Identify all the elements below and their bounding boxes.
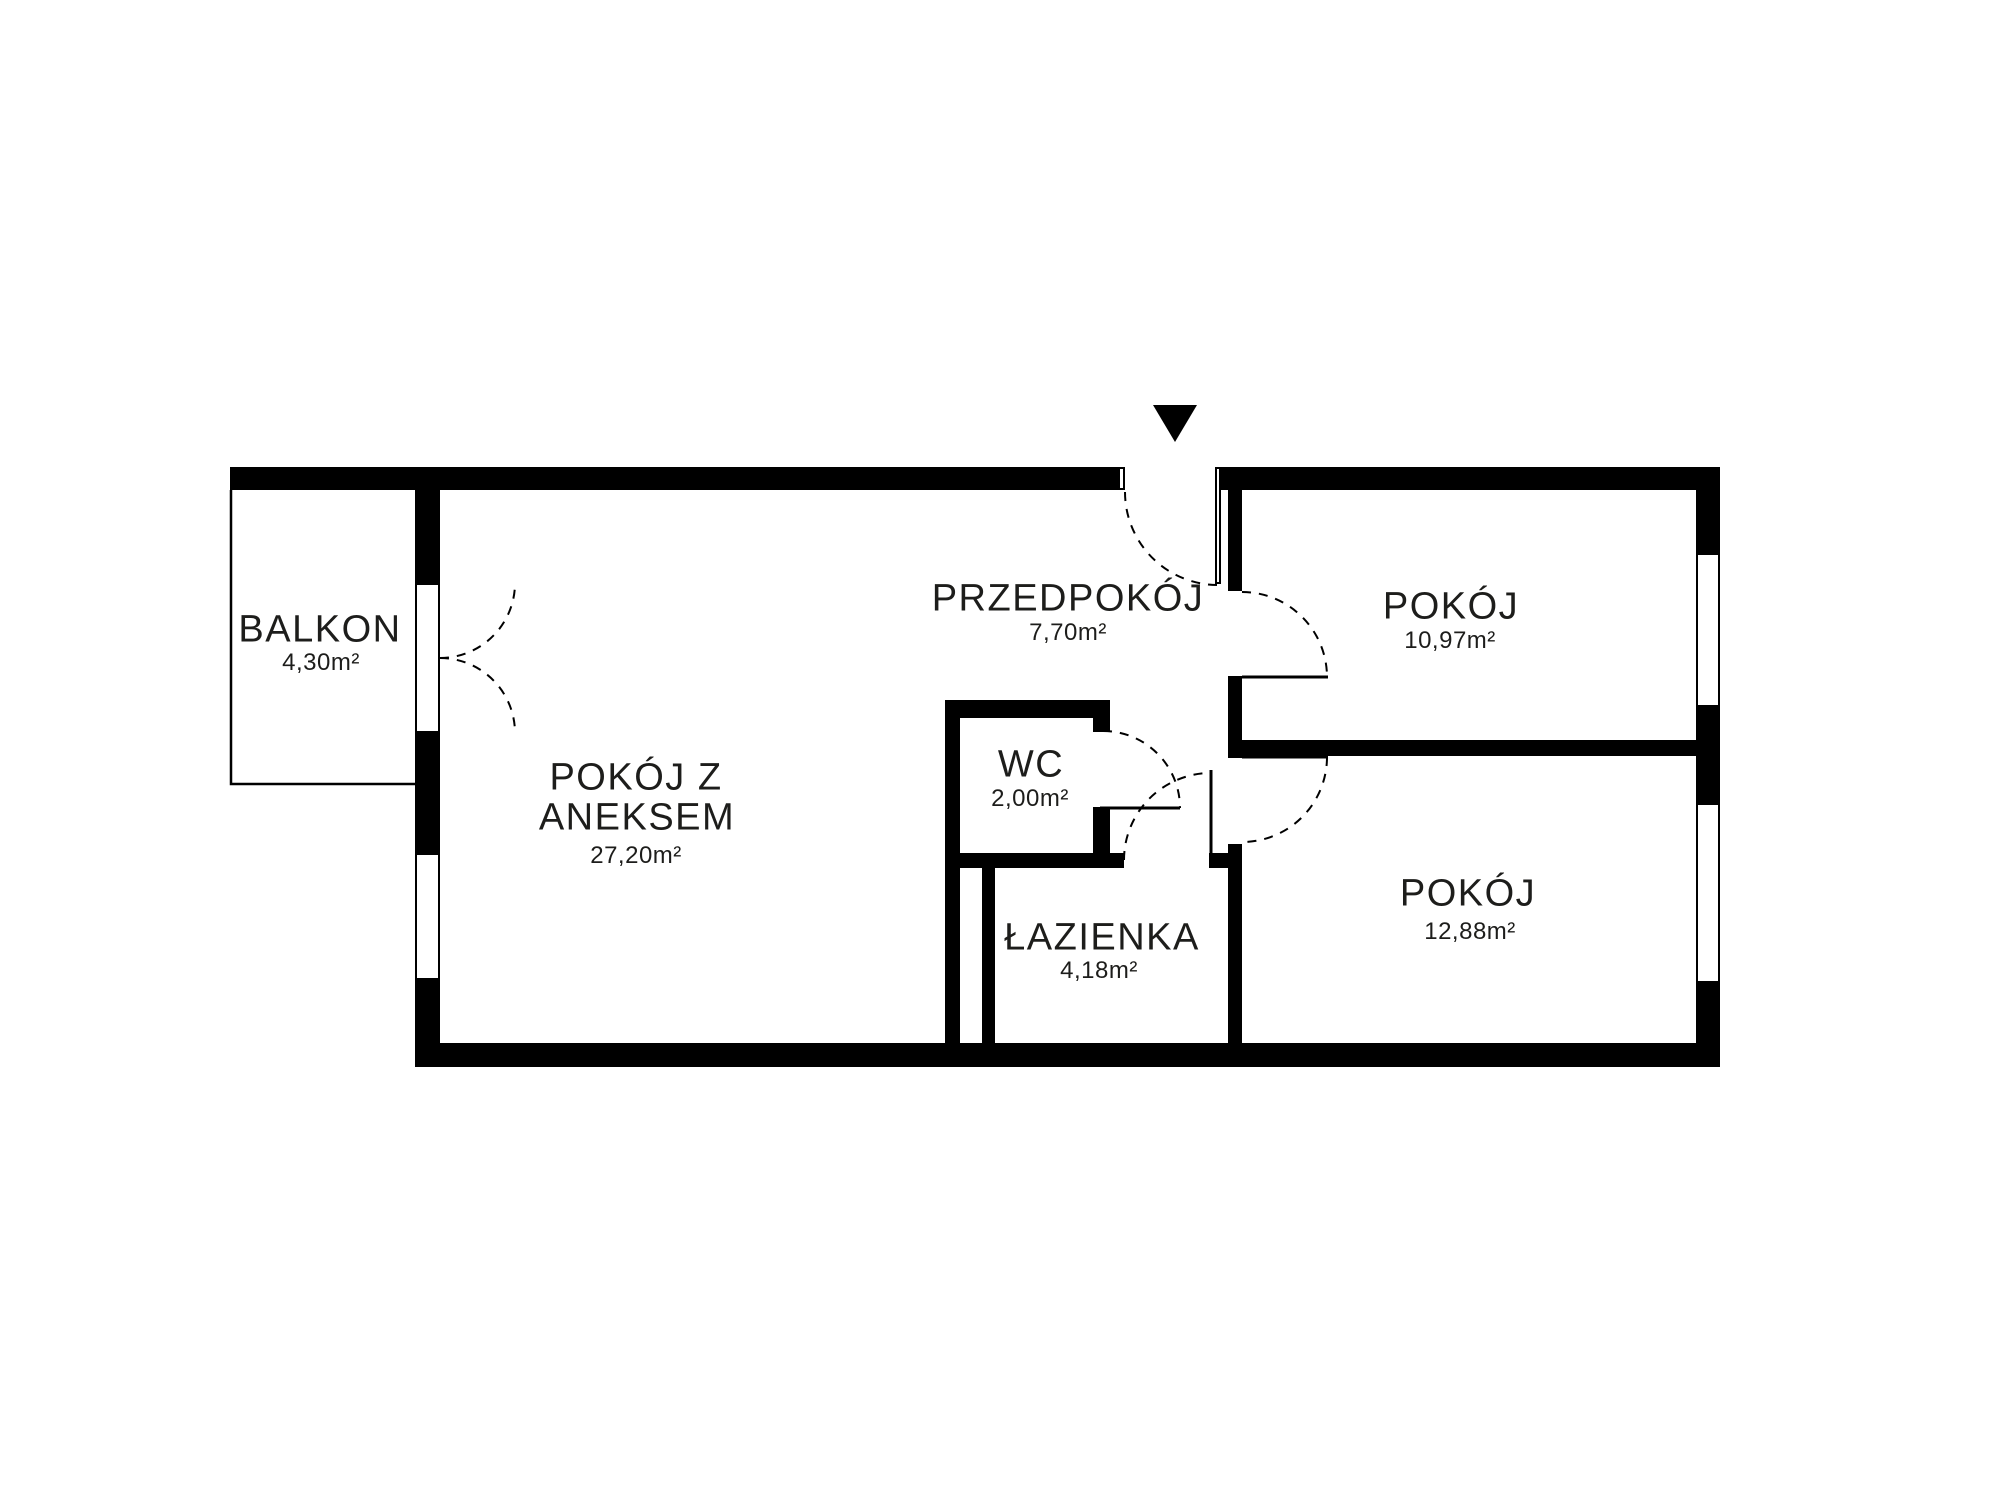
door-jamb-lines: [1093, 590, 1242, 868]
entrance-jamb-left: [1118, 467, 1125, 490]
door-arc-room-lower: [1242, 757, 1327, 842]
balcony-door-opening: [415, 583, 440, 733]
entrance-arrow-icon: [1153, 405, 1197, 442]
window-left: [415, 853, 440, 980]
door-arc-wc: [1103, 731, 1180, 808]
wall-partition-vertical-upper: [1228, 490, 1242, 590]
wall-top-left: [230, 467, 1118, 490]
door-arc-balcony-upper: [440, 583, 515, 658]
door-arc-room-upper: [1242, 592, 1327, 677]
room-label-pokoj-gorny: POKÓJ: [1383, 586, 1519, 629]
wall-bathroom-top-stub: [1210, 853, 1242, 868]
wall-wc-bathroom-divider: [945, 853, 1123, 868]
window-right-lower: [1696, 803, 1720, 983]
room-area-przedpokoj: 7,70m²: [1029, 619, 1107, 647]
wall-between-rooms: [1228, 740, 1696, 756]
room-area-wc: 2,00m²: [991, 785, 1069, 813]
wall-right-middle: [1696, 707, 1720, 803]
window-right-upper: [1696, 553, 1720, 707]
entrance-door-leaf: [1215, 467, 1221, 584]
room-label-lazienka: ŁAZIENKA: [1004, 917, 1200, 960]
floorplan: BALKON 4,30m² POKÓJ Z ANEKSEM 27,20m² PR…: [0, 0, 2000, 1500]
room-label-przedpokoj: PRZEDPOKÓJ: [932, 578, 1205, 621]
room-label-pokoj-dolny: POKÓJ: [1400, 873, 1536, 916]
wall-wc-left: [945, 700, 960, 1043]
room-area-pokoj-z-aneksem: 27,20m²: [590, 842, 682, 870]
wall-left-lower: [415, 980, 440, 1043]
wall-wc-top: [945, 700, 1110, 718]
room-label-balkon: BALKON: [238, 609, 401, 652]
wall-wc-right-lower: [1093, 808, 1110, 853]
room-area-balkon: 4,30m²: [282, 649, 360, 677]
room-area-lazienka: 4,18m²: [1060, 957, 1138, 985]
wall-left-upper: [415, 467, 440, 583]
room-area-pokoj-gorny: 10,97m²: [1404, 627, 1496, 655]
door-arc-bathroom: [1124, 773, 1211, 860]
wall-bottom: [415, 1043, 1720, 1067]
room-label-pokoj-z-aneksem-line1: POKÓJ Z: [549, 757, 722, 800]
wall-bathroom-left: [982, 868, 995, 1043]
wall-partition-vertical-lower: [1228, 845, 1242, 1043]
wall-partition-vertical-middle: [1228, 677, 1242, 740]
wall-left-middle: [415, 733, 440, 853]
wall-wc-right-upper: [1093, 718, 1110, 731]
room-label-wc: WC: [998, 744, 1064, 787]
door-arc-balcony-lower: [440, 658, 515, 733]
room-area-pokoj-dolny: 12,88m²: [1424, 918, 1516, 946]
wall-top-right: [1221, 467, 1720, 490]
door-arc-entrance: [1125, 492, 1218, 585]
room-label-pokoj-z-aneksem-line2: ANEKSEM: [539, 797, 735, 840]
wall-right-upper: [1696, 467, 1720, 553]
